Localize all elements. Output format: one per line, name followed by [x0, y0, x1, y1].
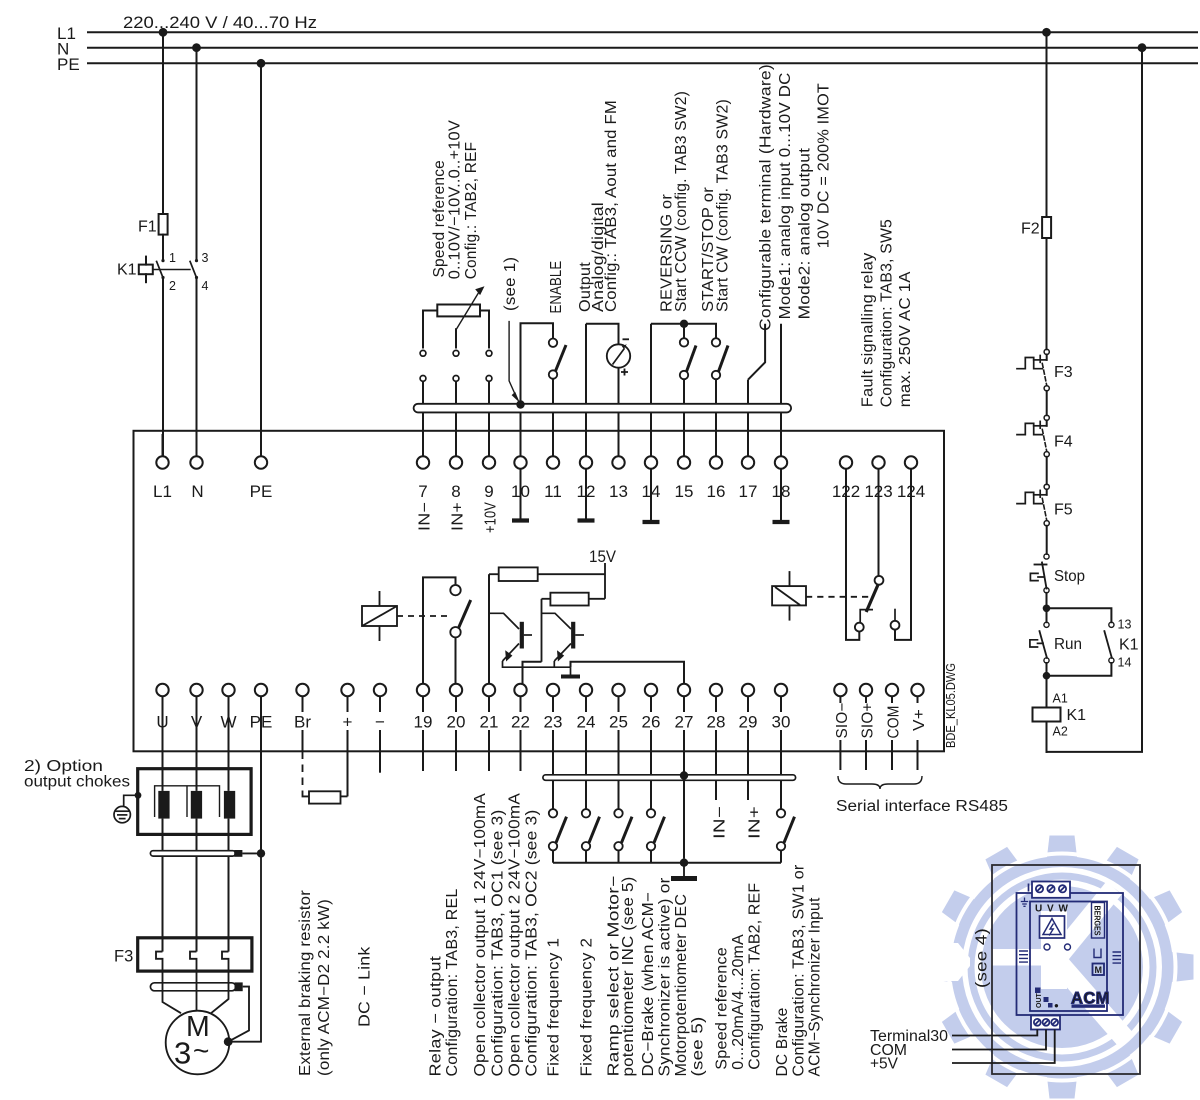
- svg-text:output chokes: output chokes: [24, 774, 130, 791]
- svg-text:max. 250V AC 1A: max. 250V AC 1A: [897, 271, 914, 407]
- svg-text:F4: F4: [1054, 434, 1073, 451]
- svg-text:8: 8: [451, 482, 460, 501]
- svg-text:Mode2: analog output: Mode2: analog output: [797, 147, 814, 319]
- svg-text:24: 24: [577, 713, 596, 732]
- svg-text:K1: K1: [1067, 707, 1087, 724]
- svg-text:DC−Brake (when ACM−: DC−Brake (when ACM−: [640, 892, 657, 1077]
- svg-text:External braking resistor: External braking resistor: [297, 890, 314, 1076]
- svg-text:Configuration: TAB3, REL: Configuration: TAB3, REL: [444, 888, 461, 1076]
- svg-text:ACM−Synchronizer Input: ACM−Synchronizer Input: [807, 897, 824, 1076]
- svg-text:PE: PE: [250, 482, 273, 501]
- svg-text:0...20mA/4...20mA: 0...20mA/4...20mA: [730, 934, 747, 1070]
- svg-text:23: 23: [544, 713, 563, 732]
- svg-text:Mode1: analog input 0...10V DC: Mode1: analog input 0...10V DC: [777, 72, 794, 319]
- svg-text:●: ●: [1054, 1001, 1059, 1010]
- svg-text:Speed reference: Speed reference: [713, 947, 730, 1070]
- svg-text:F3: F3: [114, 948, 133, 966]
- svg-text:IN−: IN−: [417, 502, 434, 531]
- svg-text:(see 4): (see 4): [974, 928, 991, 988]
- svg-text:Fixed frequency 1: Fixed frequency 1: [546, 938, 563, 1077]
- svg-text:IN+: IN+: [450, 502, 467, 531]
- svg-text:Config.: TAB2, REF: Config.: TAB2, REF: [463, 142, 480, 280]
- svg-text:PE: PE: [57, 55, 80, 74]
- svg-text:A2: A2: [1053, 725, 1068, 739]
- svg-text:Serial interface RS485: Serial interface RS485: [836, 798, 1008, 815]
- svg-text:U V W: U V W: [1035, 904, 1069, 915]
- svg-text:3: 3: [174, 1036, 191, 1071]
- svg-text:+: +: [343, 713, 353, 732]
- svg-text:19: 19: [414, 713, 433, 732]
- svg-text:13: 13: [609, 482, 628, 501]
- svg-text:−: −: [375, 713, 385, 732]
- svg-text:2) Option: 2) Option: [24, 758, 103, 775]
- svg-text:Open collector output 2 24V−: Open collector output 2 24V−100mA: [506, 792, 523, 1076]
- svg-text:2: 2: [169, 279, 176, 293]
- svg-text:BDE_KL05.DWG: BDE_KL05.DWG: [943, 663, 958, 748]
- svg-text:(see 1): (see 1): [502, 257, 519, 311]
- svg-text:4: 4: [202, 279, 209, 293]
- svg-text:Configuration: TAB3, SW5: Configuration: TAB3, SW5: [879, 219, 896, 407]
- svg-text:3: 3: [202, 251, 209, 265]
- svg-text:IN−: IN−: [712, 806, 729, 839]
- svg-text:Configurable terminal (Hardwar: Configurable terminal (Hardware): [758, 64, 775, 331]
- svg-text:N: N: [191, 482, 203, 501]
- svg-text:(only ACM−D2 2.2 kW): (only ACM−D2 2.2 kW): [316, 899, 333, 1076]
- svg-text:26: 26: [642, 713, 661, 732]
- svg-text:22: 22: [511, 713, 530, 732]
- svg-text:Configuration: TAB2, REF: Configuration: TAB2, REF: [746, 883, 763, 1070]
- svg-text:27: 27: [675, 713, 694, 732]
- svg-text:15V: 15V: [589, 548, 616, 566]
- svg-text:IN+: IN+: [746, 806, 763, 839]
- svg-text:M: M: [1095, 965, 1103, 975]
- svg-text:9: 9: [484, 482, 493, 501]
- svg-text:BERGES: BERGES: [1093, 906, 1103, 936]
- svg-text:K1: K1: [1119, 637, 1139, 654]
- svg-text:Configuration: TAB3, OC2 (s: Configuration: TAB3, OC2 (see 3): [523, 810, 540, 1077]
- svg-text:(see 5): (see 5): [690, 1017, 707, 1077]
- svg-text:Start CCW (config. TAB3 SW2): Start CCW (config. TAB3 SW2): [673, 91, 690, 312]
- svg-text:Synchronizer is active) or: Synchronizer is active) or: [657, 878, 674, 1077]
- svg-text:ENABLE: ENABLE: [548, 261, 565, 314]
- svg-text:Start CW (config. TAB3 SW2): Start CW (config. TAB3 SW2): [715, 99, 732, 312]
- svg-text:potentiometer INC (see 5): potentiometer INC (see 5): [620, 877, 637, 1077]
- svg-text:DC Brake: DC Brake: [774, 1008, 791, 1077]
- svg-text:Relay − output: Relay − output: [428, 955, 445, 1076]
- svg-text:220...240 V / 40...70 Hz: 220...240 V / 40...70 Hz: [123, 13, 317, 32]
- svg-text:V+: V+: [911, 709, 928, 731]
- svg-text:1: 1: [169, 251, 176, 265]
- svg-text:OUT: OUT: [1036, 993, 1043, 1009]
- svg-text:F5: F5: [1054, 502, 1073, 519]
- svg-text:Configuration: TAB3, OC1 (s: Configuration: TAB3, OC1 (see 3): [490, 810, 507, 1077]
- svg-text:15: 15: [675, 482, 694, 501]
- svg-text:Fault signalling relay: Fault signalling relay: [860, 252, 877, 407]
- svg-text:SIO−: SIO−: [834, 703, 851, 739]
- svg-text:Open collector output 1 24V−: Open collector output 1 24V−100mA: [472, 792, 489, 1076]
- svg-text:Stop: Stop: [1054, 568, 1085, 585]
- svg-text:Speed reference: Speed reference: [431, 160, 448, 278]
- svg-text:16: 16: [707, 482, 726, 501]
- svg-text:Configuration: TAB3, SW1 or: Configuration: TAB3, SW1 or: [790, 865, 807, 1077]
- svg-text:0..10V/−10V..0..+10V: 0..10V/−10V..0..+10V: [447, 120, 464, 280]
- svg-text:SIO+: SIO+: [860, 703, 877, 739]
- svg-text:11: 11: [544, 482, 562, 501]
- svg-text:30: 30: [772, 713, 791, 732]
- svg-text:A1: A1: [1053, 692, 1068, 706]
- svg-text:20: 20: [447, 713, 466, 732]
- svg-text:+5V: +5V: [870, 1056, 899, 1073]
- svg-text:Fixed frequency 2: Fixed frequency 2: [579, 938, 596, 1077]
- svg-text:F1: F1: [138, 219, 157, 236]
- svg-text:L1: L1: [153, 482, 172, 501]
- svg-text:Run: Run: [1054, 636, 1082, 653]
- svg-text:Config.: TAB3, Aout and FM: Config.: TAB3, Aout and FM: [603, 100, 620, 312]
- svg-text:10V DC = 200% IMOT: 10V DC = 200% IMOT: [816, 83, 833, 249]
- svg-text:~: ~: [193, 1035, 209, 1066]
- svg-text:13: 13: [1118, 618, 1132, 632]
- svg-text:Motorpotentiometer DEC: Motorpotentiometer DEC: [673, 894, 690, 1077]
- svg-text:DC − Link: DC − Link: [357, 946, 374, 1027]
- svg-text:29: 29: [739, 713, 758, 732]
- svg-text:28: 28: [707, 713, 726, 732]
- svg-text:+10V: +10V: [483, 502, 500, 533]
- svg-text:COM: COM: [886, 706, 903, 739]
- svg-text:F2: F2: [1021, 221, 1040, 238]
- svg-text:7: 7: [418, 482, 427, 501]
- svg-text:F3: F3: [1054, 364, 1073, 381]
- svg-text:25: 25: [609, 713, 628, 732]
- svg-text:K1: K1: [117, 262, 137, 279]
- svg-text:14: 14: [1118, 656, 1132, 670]
- svg-text:Br: Br: [294, 713, 311, 732]
- svg-text:17: 17: [739, 482, 758, 501]
- svg-text:21: 21: [480, 713, 499, 732]
